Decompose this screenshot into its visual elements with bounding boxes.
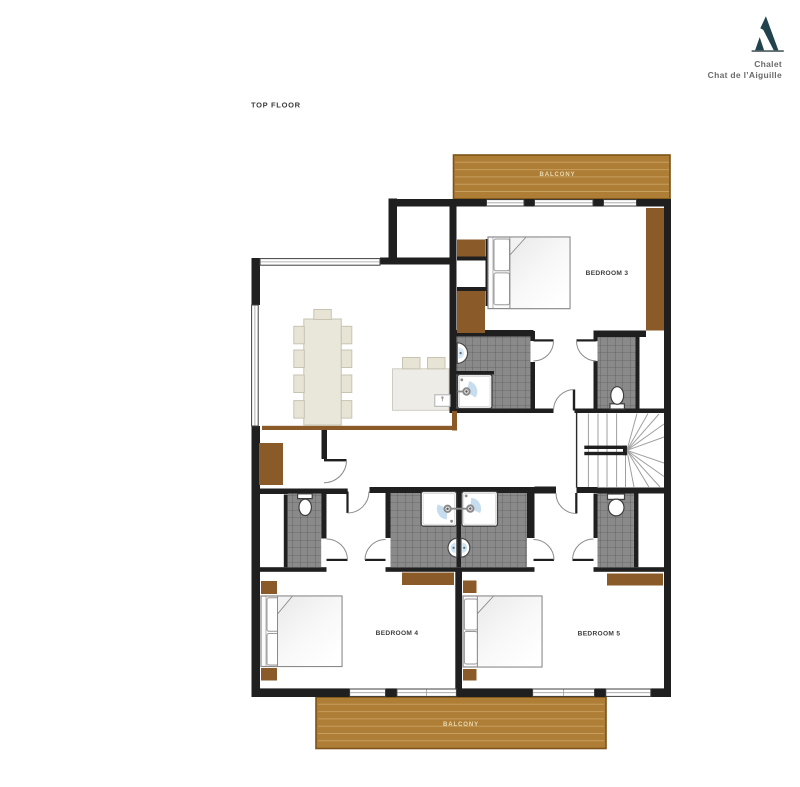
- svg-text:BALCONY: BALCONY: [443, 722, 479, 728]
- svg-text:BEDROOM 3: BEDROOM 3: [586, 270, 629, 277]
- svg-text:BEDROOM 5: BEDROOM 5: [578, 630, 621, 637]
- svg-text:BALCONY: BALCONY: [540, 172, 576, 178]
- svg-text:TOP FLOOR: TOP FLOOR: [251, 100, 301, 109]
- svg-text:BEDROOM 4: BEDROOM 4: [376, 630, 419, 637]
- svg-text:Chalet: Chalet: [754, 59, 782, 69]
- svg-text:Chat de l’Aiguille: Chat de l’Aiguille: [708, 70, 782, 80]
